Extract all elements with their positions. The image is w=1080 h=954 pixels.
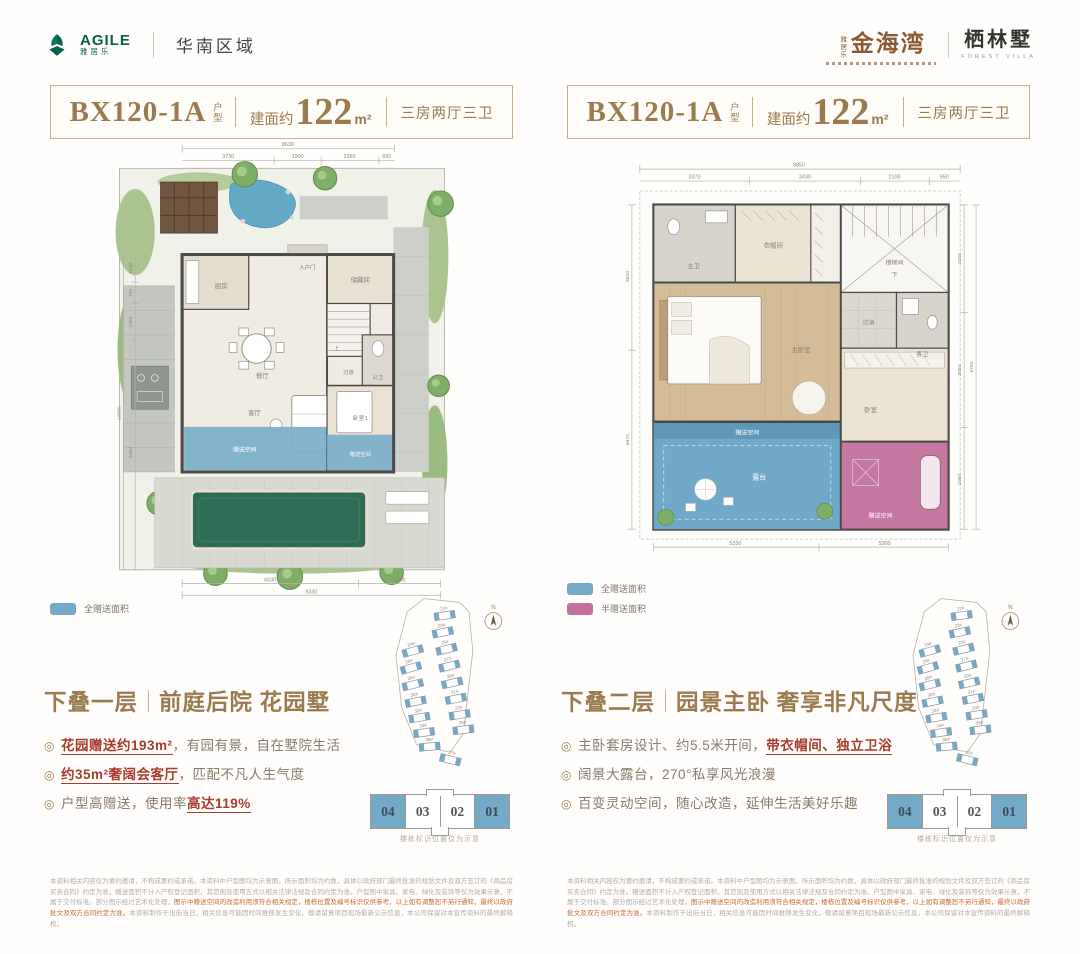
svg-text:楼梯间: 楼梯间 bbox=[885, 259, 903, 267]
svg-text:8630: 8630 bbox=[281, 142, 293, 148]
room-layout-label: 三房两厅三卫 bbox=[918, 102, 1011, 123]
agile-name-cn: 雅居乐 bbox=[80, 48, 131, 56]
legend-swatch-blue bbox=[50, 603, 76, 615]
unit-strip: 04 03 02 01 bbox=[370, 794, 510, 829]
badge-divider bbox=[386, 97, 387, 127]
dining-table bbox=[241, 334, 270, 363]
badge-divider bbox=[235, 97, 236, 127]
unit-cell-03: 03 bbox=[405, 795, 440, 828]
svg-text:赠送空间: 赠送空间 bbox=[349, 450, 371, 458]
svg-text:过道: 过道 bbox=[343, 368, 354, 376]
brand-divider bbox=[153, 32, 154, 58]
svg-text:下: 下 bbox=[891, 272, 897, 279]
dim-labels-bottom: 5330 5300 bbox=[729, 541, 890, 547]
svg-text:2350: 2350 bbox=[343, 154, 355, 160]
svg-text:赠送空间: 赠送空间 bbox=[233, 445, 257, 453]
svg-text:3430: 3430 bbox=[798, 175, 810, 181]
title-separator bbox=[148, 690, 149, 712]
svg-text:入户门: 入户门 bbox=[299, 263, 315, 271]
svg-text:36#: 36# bbox=[942, 737, 950, 743]
unit-model-suffix: 户型 bbox=[728, 102, 738, 123]
svg-text:过道: 过道 bbox=[862, 318, 874, 326]
title-separator bbox=[665, 690, 666, 712]
svg-text:客厅: 客厅 bbox=[248, 408, 261, 417]
badge-divider bbox=[903, 97, 904, 127]
panel-level-2: BX120-1A 户型 建面约 122 m² 三房两厅三卫 bbox=[561, 75, 1036, 931]
project-name: 金海湾 bbox=[851, 24, 926, 58]
svg-text:卧室: 卧室 bbox=[864, 405, 877, 414]
svg-text:1900: 1900 bbox=[291, 154, 303, 160]
svg-text:N: N bbox=[491, 604, 495, 611]
svg-text:1030: 1030 bbox=[128, 263, 134, 274]
svg-text:35#: 35# bbox=[976, 720, 985, 726]
top-brand-bar: AGILE 雅居乐 华南区域 雅居乐 金海湾 栖林墅 FOREST VILLA bbox=[0, 0, 1080, 71]
dim-labels-top: 8630 3730 1900 2350 650 bbox=[222, 142, 391, 160]
project-tagline-microtext bbox=[826, 62, 936, 65]
legend-label: 全赠送面积 bbox=[84, 602, 129, 615]
floor-plan-level2-wrap: 9850 3370 3430 2100 950 bbox=[561, 139, 1036, 627]
svg-text:主卧室: 主卧室 bbox=[791, 345, 811, 354]
house-level2 bbox=[653, 205, 947, 529]
legend-swatch-pink bbox=[567, 603, 593, 615]
legend-swatch-blue bbox=[567, 583, 593, 595]
floor-plan-level2: 9850 3370 3430 2100 950 bbox=[610, 161, 988, 599]
floor-plan-level1-wrap: 8630 3730 1900 2350 650 bbox=[44, 139, 519, 627]
dim-labels-top: 9850 3370 3430 2100 950 bbox=[688, 163, 948, 181]
side-path bbox=[393, 227, 428, 472]
svg-text:1380: 1380 bbox=[128, 316, 134, 327]
unit-cell-01: 01 bbox=[991, 795, 1026, 828]
compass-icon: N bbox=[1002, 604, 1019, 630]
svg-text:3550: 3550 bbox=[957, 364, 963, 375]
svg-text:650: 650 bbox=[382, 154, 391, 160]
legend-item-full-gift: 全赠送面积 bbox=[50, 602, 129, 615]
svg-text:储藏间: 储藏间 bbox=[350, 275, 369, 284]
brochure-page: AGILE 雅居乐 华南区域 雅居乐 金海湾 栖林墅 FOREST VILLA bbox=[0, 0, 1080, 954]
unit-model-suffix: 户型 bbox=[211, 102, 221, 123]
outdoor-kitchen bbox=[131, 366, 168, 409]
unit-cell-02: 02 bbox=[957, 795, 992, 828]
panel-level-1: BX120-1A 户型 建面约 122 m² 三房两厅三卫 bbox=[44, 75, 519, 931]
villa-name: 栖林墅 bbox=[964, 29, 1033, 51]
unit-type-badge: BX120-1A 户型 建面约 122 m² 三房两厅三卫 bbox=[567, 85, 1030, 139]
compass-icon: N bbox=[485, 604, 502, 630]
svg-text:3300: 3300 bbox=[393, 578, 405, 584]
rug bbox=[792, 381, 826, 415]
brand-divider bbox=[948, 32, 949, 58]
svg-text:6450: 6450 bbox=[128, 447, 134, 458]
lower-copy-level2: 下叠二层 园景主卧 奢享非凡尺度 主卧套房设计、约5.5米开间，带衣帽间、独立卫… bbox=[561, 685, 1036, 861]
svg-text:厨房: 厨房 bbox=[214, 281, 227, 290]
svg-text:衣帽间: 衣帽间 bbox=[763, 241, 782, 250]
svg-text:10550: 10550 bbox=[116, 406, 122, 420]
svg-text:6870: 6870 bbox=[624, 434, 630, 445]
brand-left: AGILE 雅居乐 华南区域 bbox=[44, 32, 256, 58]
unit-cell-04: 04 bbox=[888, 795, 922, 828]
svg-text:6030: 6030 bbox=[264, 578, 276, 584]
unit-cell-01: 01 bbox=[474, 795, 509, 828]
svg-text:N: N bbox=[1008, 604, 1012, 611]
legend: 全赠送面积 bbox=[50, 602, 129, 615]
svg-text:客卫: 客卫 bbox=[916, 350, 928, 358]
floor-label: 下叠二层 bbox=[561, 685, 655, 717]
svg-text:3620: 3620 bbox=[624, 271, 630, 282]
lower-copy-level1: 下叠一层 前庭后院 花园墅 花园赠送约193m²，有园有景，自在墅院生活 约35… bbox=[44, 685, 519, 861]
site-map-svg: N 22# 23# 25# 27# 29# 31# 33# 35# 37# bbox=[366, 593, 514, 785]
svg-text:35#: 35# bbox=[459, 720, 468, 726]
bathtub bbox=[920, 456, 940, 510]
unit-model: BX120-1A bbox=[69, 96, 206, 129]
floor-plan-level1: 8630 3730 1900 2350 650 bbox=[96, 139, 468, 609]
area-label: 建面约 bbox=[250, 108, 294, 129]
svg-text:36#: 36# bbox=[425, 737, 433, 743]
svg-text:750: 750 bbox=[128, 288, 134, 296]
svg-text:2100: 2100 bbox=[888, 175, 900, 181]
svg-text:赠送空间: 赠送空间 bbox=[735, 429, 759, 437]
unit-strip: 04 03 02 01 bbox=[887, 794, 1027, 829]
bed bbox=[336, 392, 371, 433]
area-label: 建面约 bbox=[767, 108, 811, 129]
unit-cell-03: 03 bbox=[922, 795, 957, 828]
area-value: 122 bbox=[812, 93, 869, 131]
area-unit: m² bbox=[871, 111, 888, 127]
dim-lines-bottom bbox=[653, 543, 947, 551]
svg-text:5330: 5330 bbox=[729, 541, 741, 547]
area-value: 122 bbox=[295, 93, 352, 131]
legend-label: 半赠送面积 bbox=[601, 602, 646, 615]
project-logo: 雅居乐 金海湾 bbox=[826, 24, 936, 65]
legend-label: 全赠送面积 bbox=[601, 582, 646, 595]
lounger bbox=[385, 511, 428, 524]
project-prefix: 雅居乐 bbox=[837, 36, 847, 59]
svg-text:5300: 5300 bbox=[878, 541, 890, 547]
svg-text:上: 上 bbox=[333, 345, 339, 353]
svg-text:9330: 9330 bbox=[305, 589, 317, 595]
legend: 全赠送面积 半赠送面积 bbox=[567, 582, 646, 615]
site-map-svg: N 22# 23# 25# 27# 29# 31# 33# 35# 37# bbox=[883, 593, 1031, 785]
disclaimer: 本资料相关内容仅为要约邀请，不构成要约或承诺。本资料中户型图均为示意图，所示面积… bbox=[50, 877, 513, 931]
svg-text:主卫: 主卫 bbox=[687, 262, 700, 271]
svg-text:卧室1: 卧室1 bbox=[352, 414, 367, 422]
svg-text:950: 950 bbox=[939, 175, 948, 181]
svg-text:3730: 3730 bbox=[222, 154, 234, 160]
area-unit: m² bbox=[354, 111, 371, 127]
disclaimer: 本资料相关内容仅为要约邀请，不构成要约或承诺。本资料中户型图均为示意图，所示面积… bbox=[567, 877, 1030, 931]
pool-area bbox=[154, 478, 444, 568]
site-map: N 22# 23# 25# 27# 29# 31# 33# 35# 37# bbox=[878, 593, 1036, 844]
room-layout-label: 三房两厅三卫 bbox=[401, 102, 494, 123]
lounger bbox=[385, 491, 428, 504]
brand-right: 雅居乐 金海湾 栖林墅 FOREST VILLA bbox=[826, 24, 1036, 65]
pool bbox=[191, 491, 365, 548]
svg-text:露台: 露台 bbox=[752, 472, 766, 481]
legend-item-full-gift: 全赠送面积 bbox=[567, 582, 646, 595]
svg-text:3150: 3150 bbox=[957, 253, 963, 264]
floor-desc: 前庭后院 花园墅 bbox=[159, 685, 330, 717]
unit-cell-04: 04 bbox=[371, 795, 405, 828]
svg-text:赠送空间: 赠送空间 bbox=[868, 511, 892, 519]
svg-text:8750: 8750 bbox=[969, 361, 975, 372]
agile-leaf-logo-icon bbox=[44, 32, 70, 58]
svg-text:9850: 9850 bbox=[792, 163, 804, 169]
unit-type-badge: BX120-1A 户型 建面约 122 m² 三房两厅三卫 bbox=[50, 85, 513, 139]
villa-logo: 栖林墅 FOREST VILLA bbox=[961, 29, 1036, 60]
floor-label: 下叠一层 bbox=[44, 685, 138, 717]
agile-brand-names: AGILE 雅居乐 bbox=[80, 33, 131, 57]
region-label: 华南区域 bbox=[176, 32, 256, 57]
villa-name-en: FOREST VILLA bbox=[961, 54, 1036, 60]
svg-text:3370: 3370 bbox=[688, 175, 700, 181]
dim-labels-left: 3620 6870 bbox=[624, 271, 630, 445]
badge-divider bbox=[752, 97, 753, 127]
legend-item-half-gift: 半赠送面积 bbox=[567, 602, 646, 615]
unit-cell-02: 02 bbox=[440, 795, 475, 828]
svg-text:公卫: 公卫 bbox=[372, 374, 383, 381]
dim-lines-left bbox=[627, 205, 635, 529]
unit-model: BX120-1A bbox=[586, 96, 723, 129]
site-map: N 22# 23# 25# 27# 29# 31# 33# 35# 37# bbox=[361, 593, 519, 844]
svg-text:2050: 2050 bbox=[957, 474, 963, 485]
svg-text:餐厅: 餐厅 bbox=[256, 371, 269, 380]
garden-path bbox=[299, 196, 387, 219]
